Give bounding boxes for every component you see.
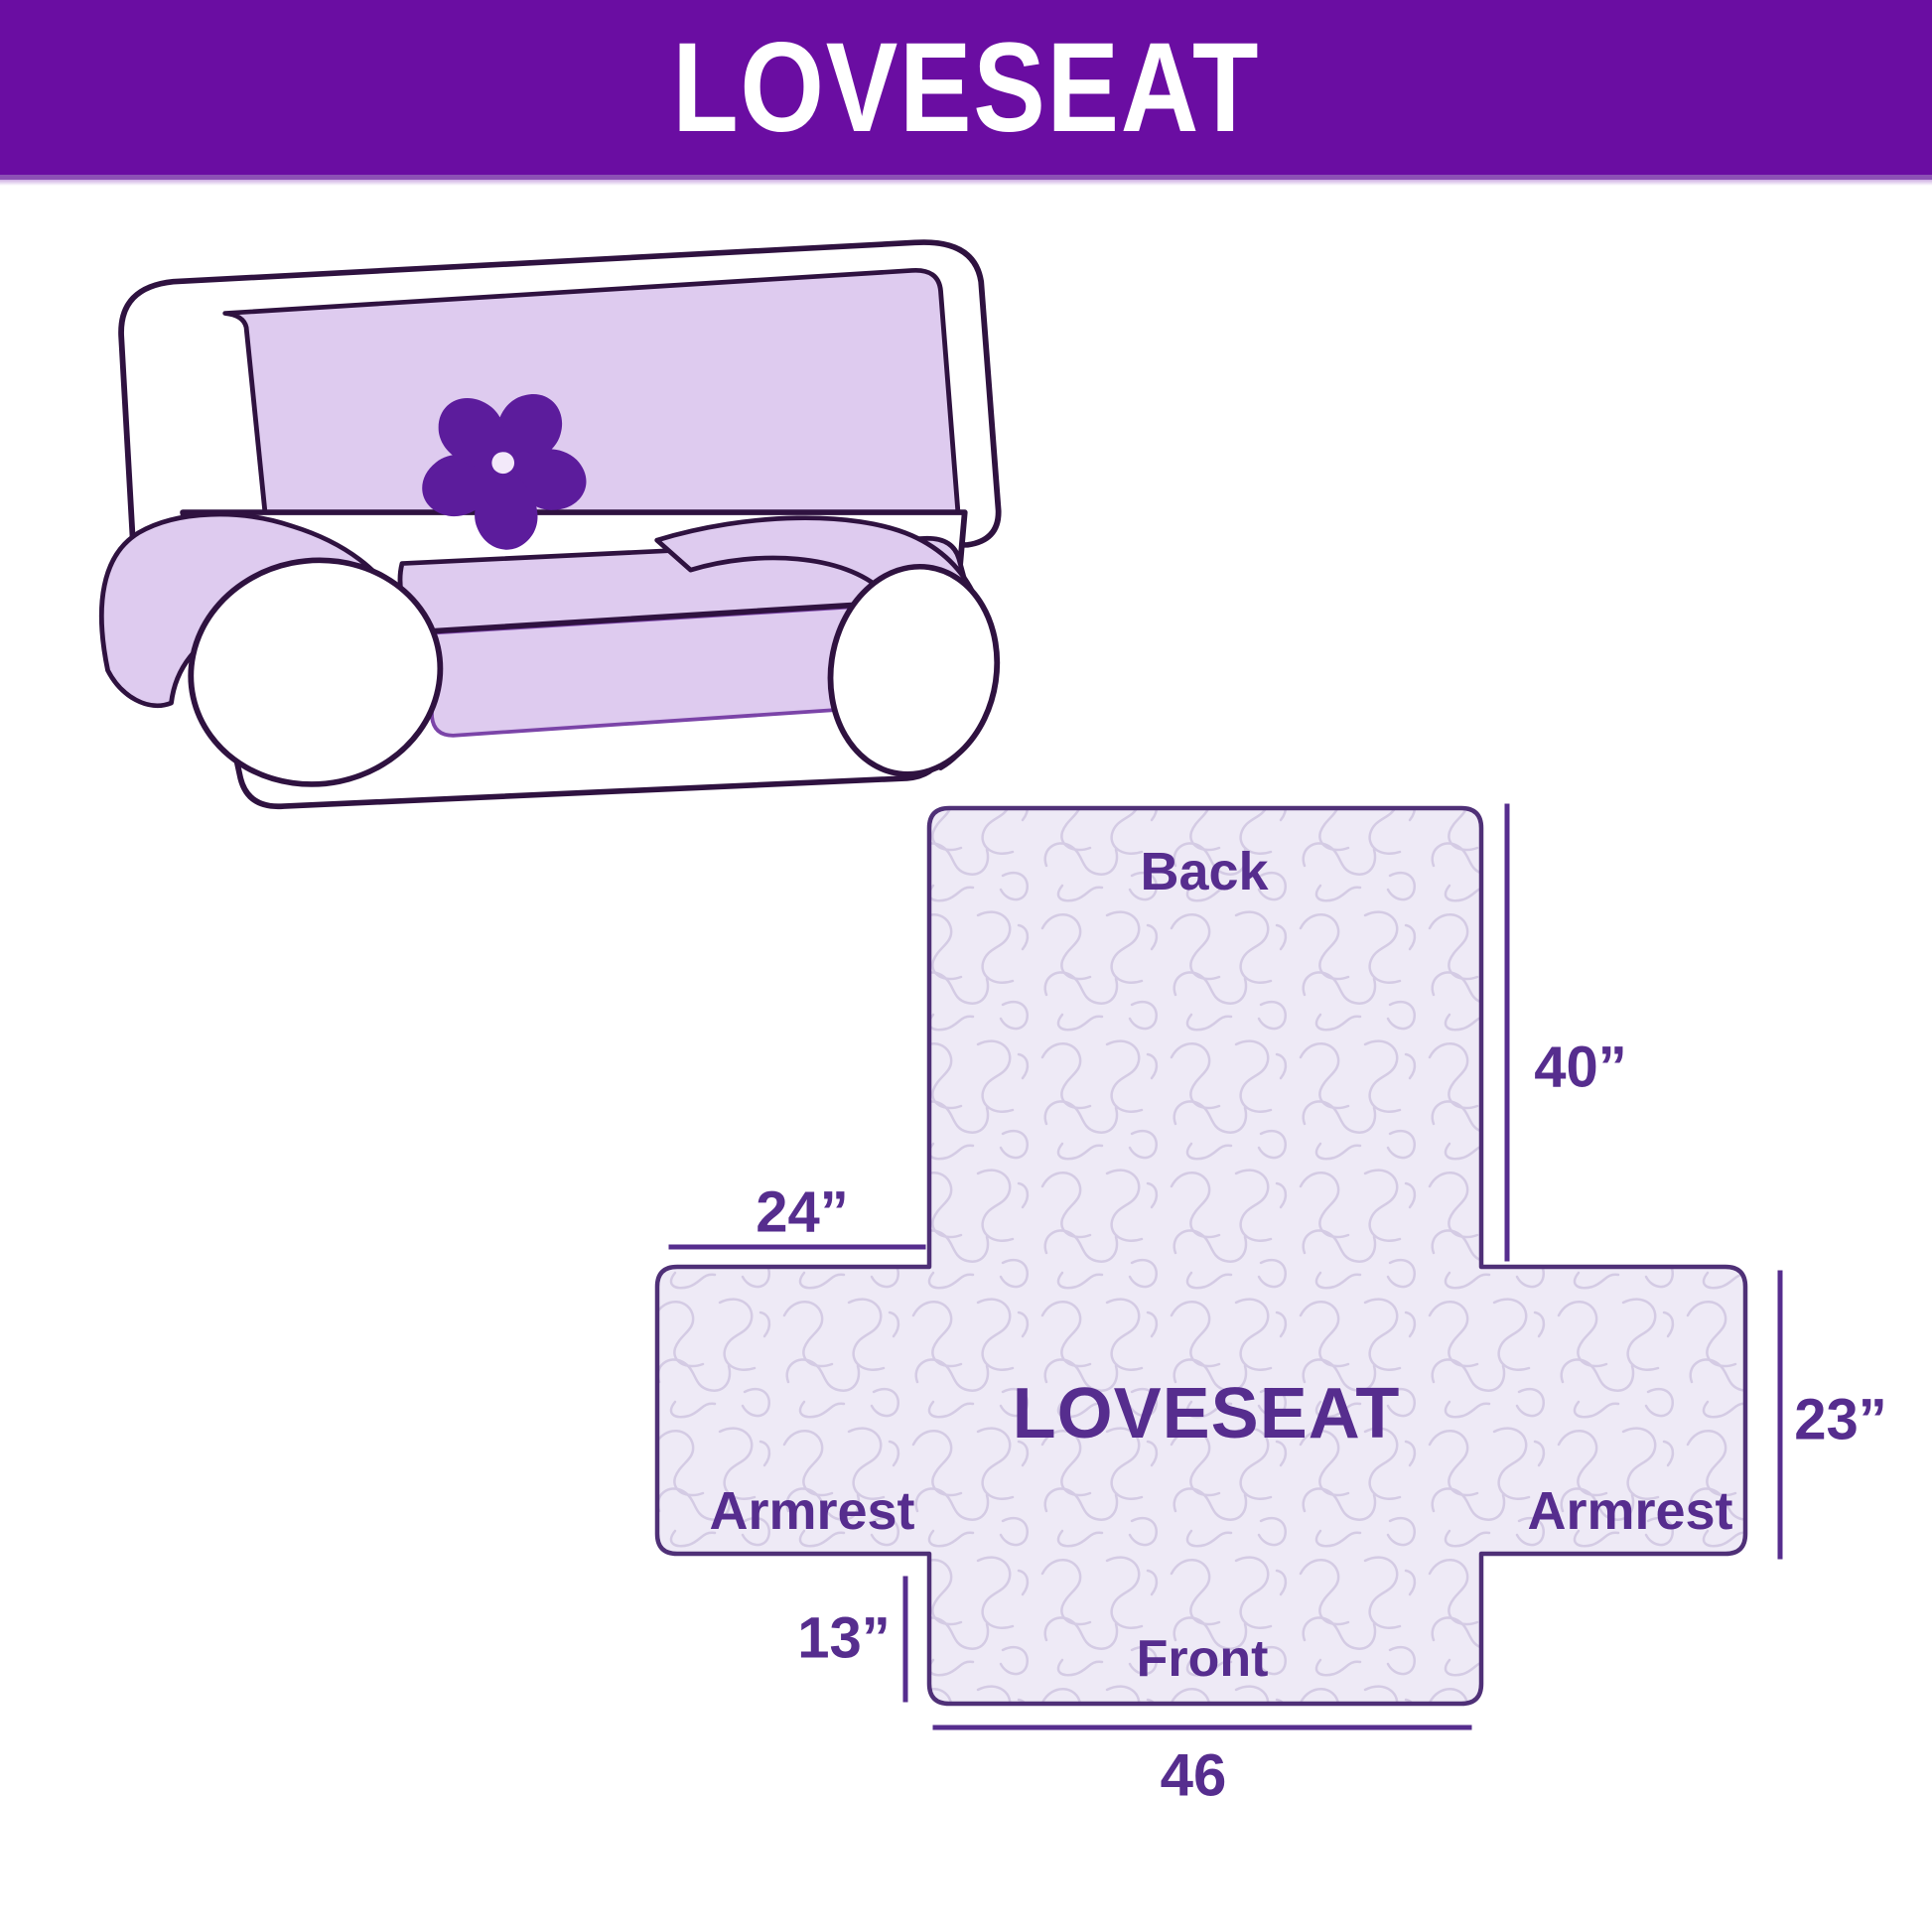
loveseat-illustration: [94, 233, 1018, 821]
dim-front-flap-height-label: 13”: [797, 1605, 891, 1672]
pinwheel-center: [491, 452, 514, 474]
cover-cross-shape: [657, 808, 1745, 1704]
product-infographic: LOVESEAT: [0, 0, 1932, 1932]
header-divider-fade: [0, 180, 1932, 186]
dim-front-width-label: 46: [1161, 1741, 1227, 1810]
diagram-center-label: LOVESEAT: [1013, 1373, 1401, 1454]
dim-side-height-label: 23”: [1794, 1387, 1887, 1453]
cover-diagram: [625, 774, 1932, 1932]
diagram-front-label: Front: [1137, 1629, 1269, 1689]
diagram-armrest-left-label: Armrest: [709, 1480, 914, 1542]
diagram-armrest-right-label: Armrest: [1527, 1480, 1732, 1542]
diagram-back-label: Back: [1140, 841, 1268, 902]
dim-back-height-label: 40”: [1534, 1035, 1627, 1101]
dim-armrest-width-label: 24”: [756, 1179, 849, 1246]
page-title: LOVESEAT: [672, 15, 1260, 161]
header-banner: LOVESEAT: [0, 0, 1932, 175]
